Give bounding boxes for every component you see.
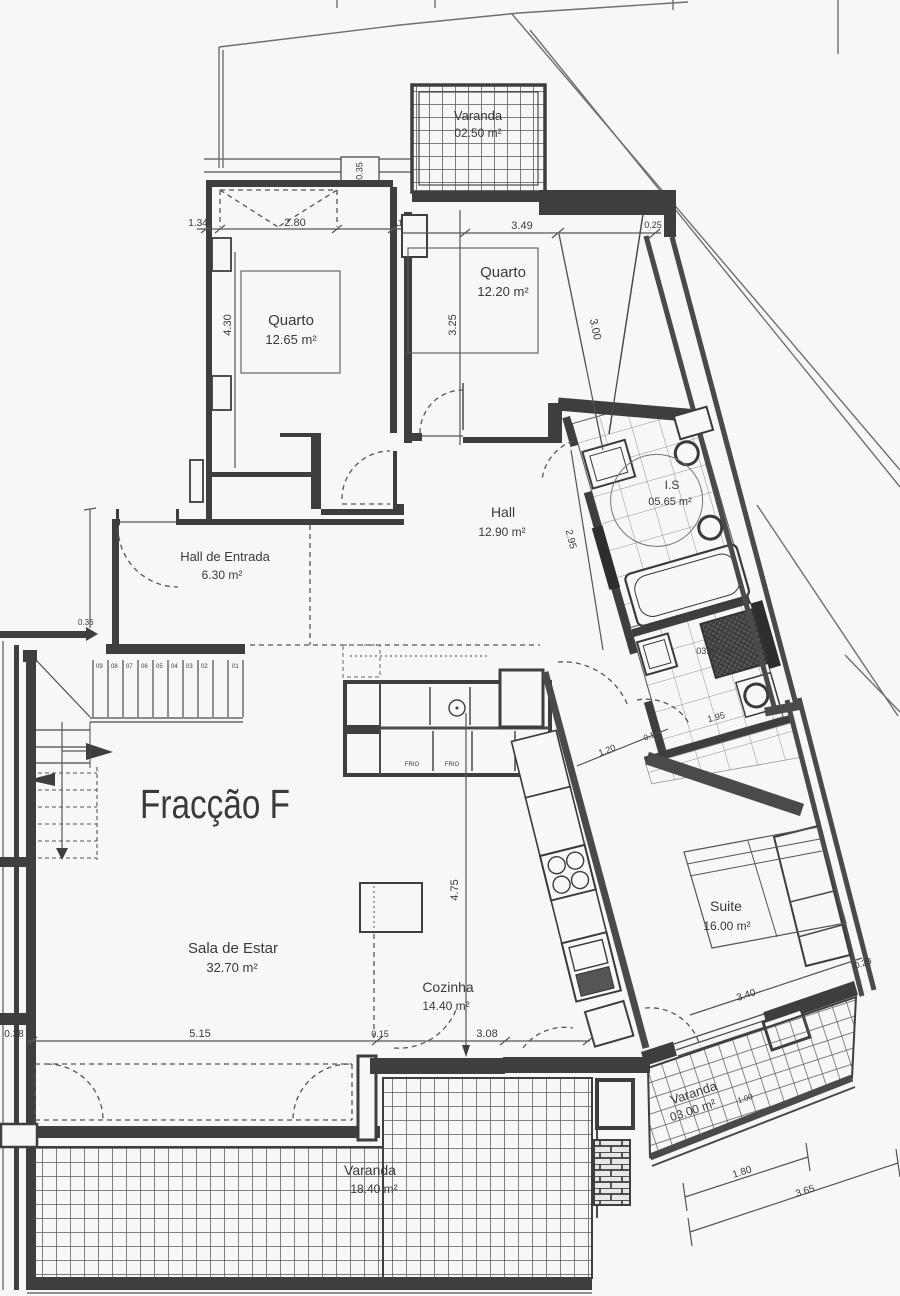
svg-text:02: 02 <box>201 664 208 670</box>
svg-text:32.70 m²: 32.70 m² <box>206 960 258 975</box>
svg-text:3.08: 3.08 <box>476 1028 497 1040</box>
svg-text:03.80 m²: 03.80 m² <box>696 646 732 656</box>
svg-text:07: 07 <box>126 664 133 670</box>
svg-text:4.30: 4.30 <box>222 314 234 335</box>
svg-text:02.50 m²: 02.50 m² <box>454 126 501 140</box>
svg-text:04: 04 <box>171 664 178 670</box>
svg-text:3.25: 3.25 <box>447 314 459 335</box>
svg-text:06: 06 <box>141 664 148 670</box>
svg-text:0.38: 0.38 <box>4 1029 24 1040</box>
svg-text:Hall: Hall <box>491 504 515 520</box>
svg-text:Hall de Entrada: Hall de Entrada <box>180 549 270 564</box>
svg-text:FRIO: FRIO <box>405 762 420 768</box>
svg-text:08: 08 <box>111 664 118 670</box>
svg-text:12.65 m²: 12.65 m² <box>265 332 317 347</box>
svg-text:FRIO: FRIO <box>445 762 460 768</box>
svg-text:03: 03 <box>186 664 193 670</box>
svg-text:16.00 m²: 16.00 m² <box>703 919 750 933</box>
svg-text:Fracção F: Fracção F <box>140 781 290 827</box>
svg-text:12.90 m²: 12.90 m² <box>478 525 525 539</box>
svg-text:Varanda: Varanda <box>454 108 503 123</box>
svg-text:18.40 m²: 18.40 m² <box>350 1182 397 1196</box>
svg-text:14.40 m²: 14.40 m² <box>422 999 469 1013</box>
svg-text:Varanda: Varanda <box>344 1162 396 1178</box>
svg-text:05.65 m²: 05.65 m² <box>648 496 692 508</box>
svg-text:I.S: I.S <box>665 478 680 492</box>
svg-text:Sala de Estar: Sala de Estar <box>188 940 278 957</box>
svg-text:0.36: 0.36 <box>78 618 94 627</box>
svg-text:4.75: 4.75 <box>449 879 461 900</box>
svg-text:Quarto: Quarto <box>268 312 314 329</box>
svg-text:I/S: I/S <box>706 633 717 643</box>
svg-text:0.25: 0.25 <box>644 220 662 230</box>
svg-text:6.30 m²: 6.30 m² <box>202 568 243 582</box>
svg-text:0.35: 0.35 <box>354 162 364 180</box>
svg-text:1.34: 1.34 <box>188 218 208 229</box>
svg-text:Suite: Suite <box>710 898 742 914</box>
svg-text:01: 01 <box>232 664 239 670</box>
svg-text:3.49: 3.49 <box>511 220 532 232</box>
svg-text:05: 05 <box>156 664 163 670</box>
svg-text:Quarto: Quarto <box>480 264 526 281</box>
svg-text:2.80: 2.80 <box>284 217 305 229</box>
svg-text:09: 09 <box>96 664 103 670</box>
svg-text:12.20 m²: 12.20 m² <box>477 284 529 299</box>
svg-text:5.15: 5.15 <box>189 1028 210 1040</box>
